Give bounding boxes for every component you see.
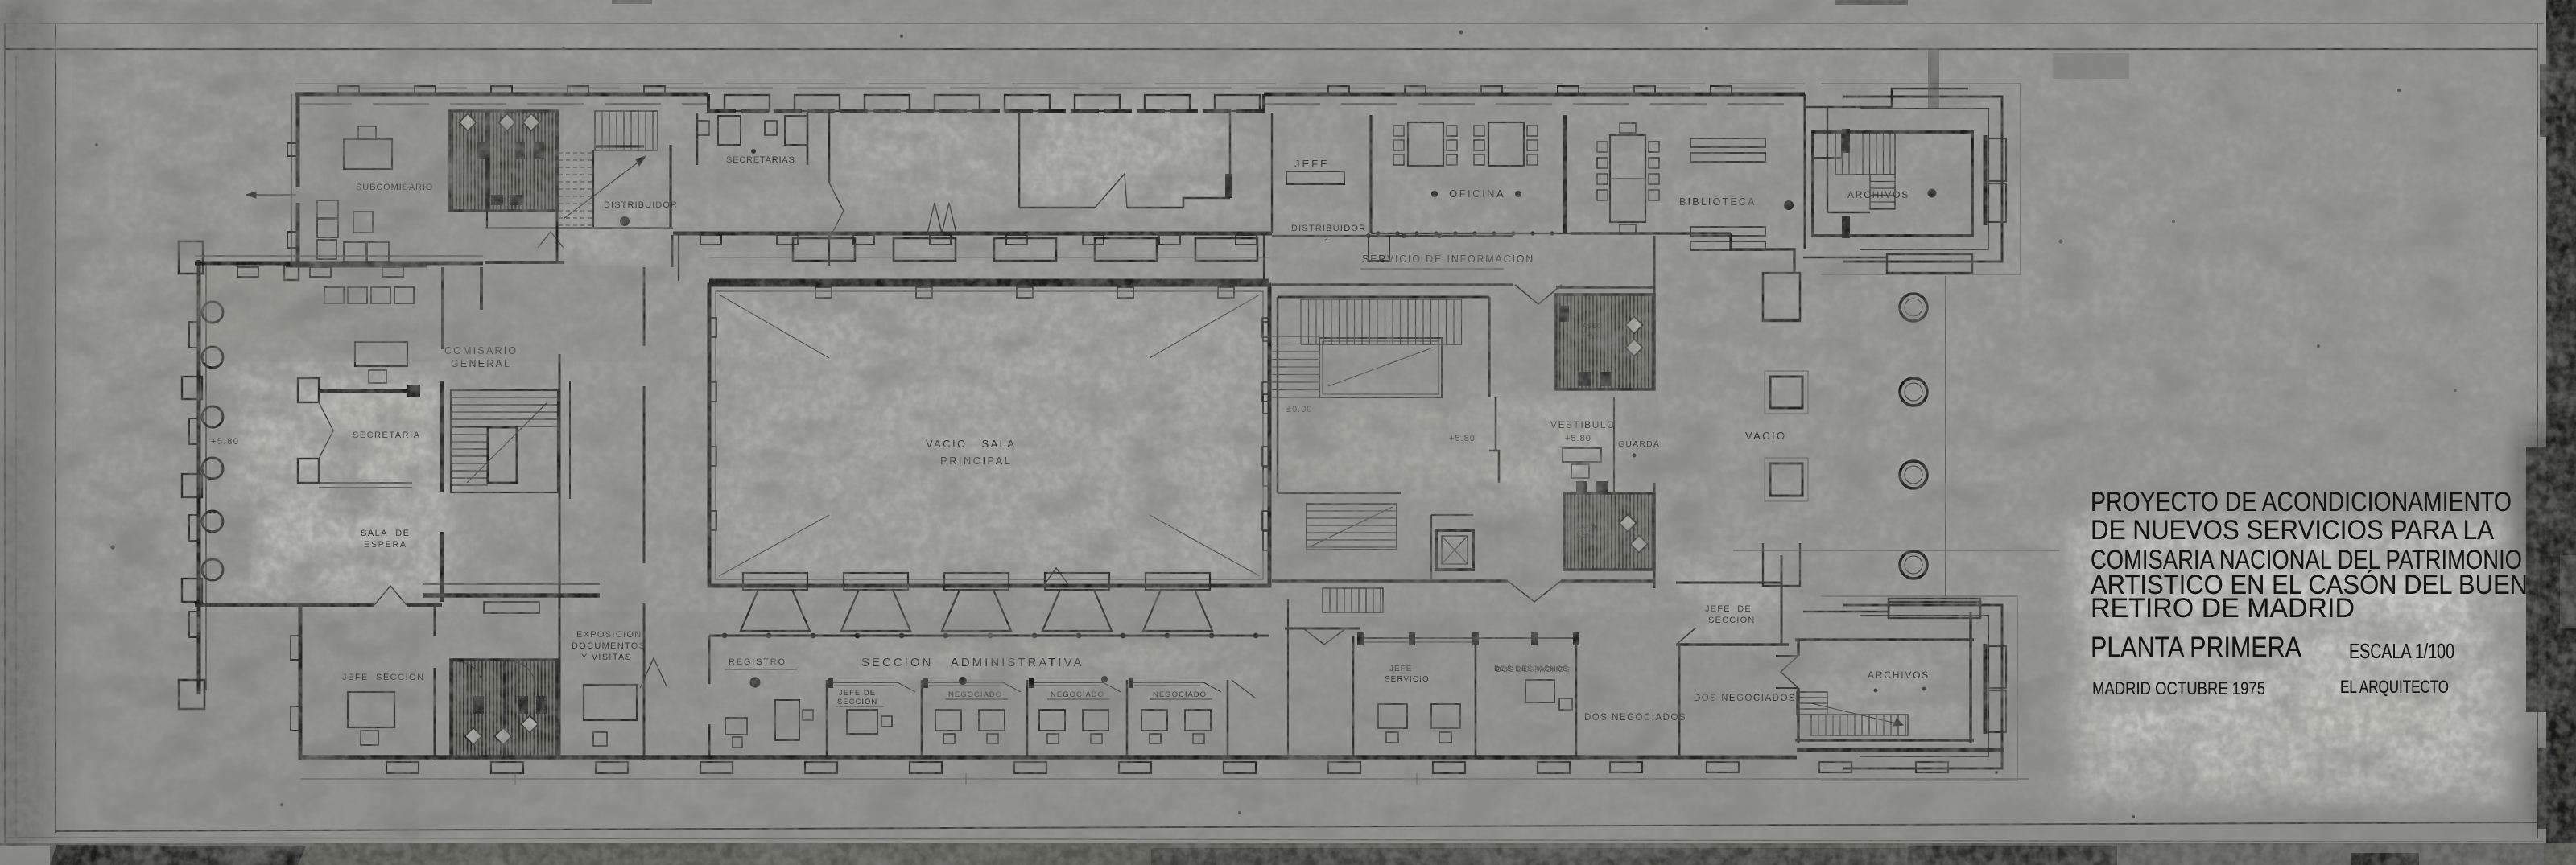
svg-text:EL ARQUITECTO: EL ARQUITECTO xyxy=(2340,677,2449,697)
svg-text:PROYECTO DE ACONDICIONAMIENTO: PROYECTO DE ACONDICIONAMIENTO xyxy=(2091,487,2512,517)
svg-text:RETIRO DE MADRID: RETIRO DE MADRID xyxy=(2091,593,2355,624)
svg-text:MADRID OCTUBRE 1975: MADRID OCTUBRE 1975 xyxy=(2092,678,2265,698)
svg-text:PLANTA PRIMERA: PLANTA PRIMERA xyxy=(2091,632,2302,663)
svg-text:ESCALA 1/100: ESCALA 1/100 xyxy=(2349,639,2454,663)
svg-text:DE NUEVOS SERVICIOS PARA LA: DE NUEVOS SERVICIOS PARA LA xyxy=(2091,515,2494,546)
